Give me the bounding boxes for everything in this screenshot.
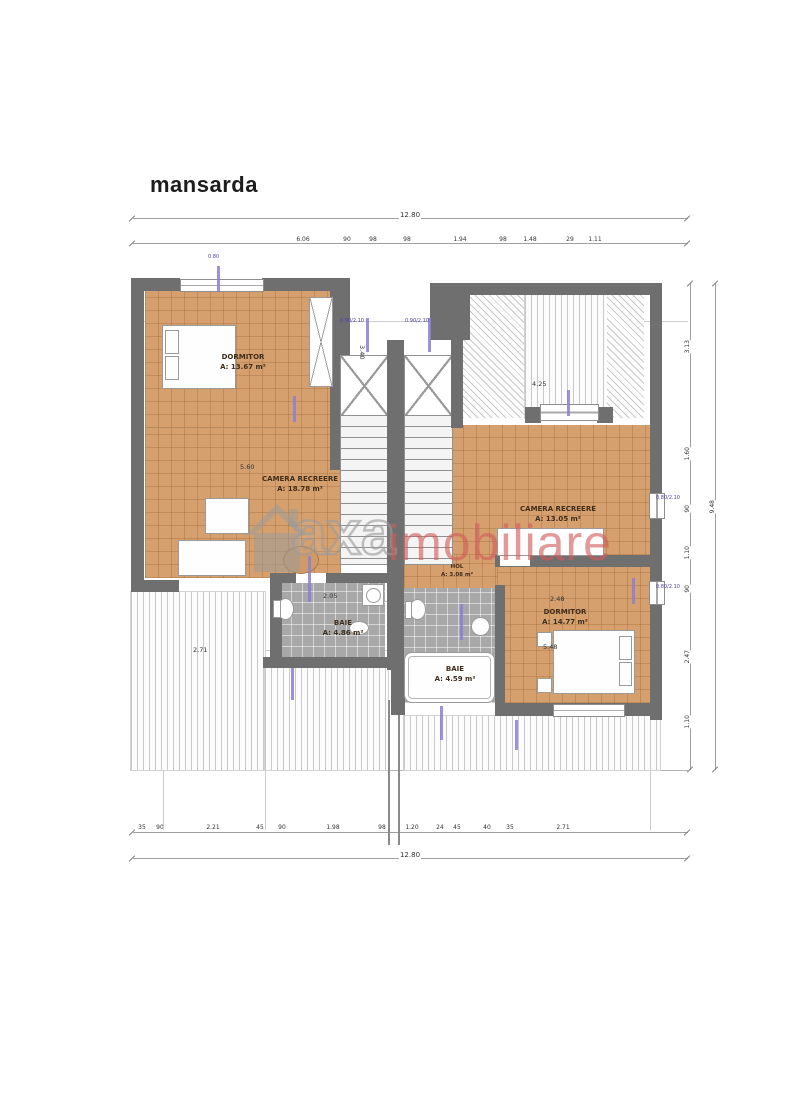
dim-label: 90 — [684, 585, 691, 593]
dim-label: 98 — [368, 236, 378, 243]
extension-line — [163, 770, 164, 830]
dim-label: 90 — [277, 824, 287, 831]
dim-label: 6.06 — [295, 236, 310, 243]
room-label-baie-left: BAIE A: 4.86 m² — [323, 618, 364, 638]
room-area: A: 13.67 m² — [220, 362, 266, 372]
room-name: CAMERA RECREERE — [520, 504, 596, 514]
staircase-left — [340, 415, 389, 565]
dim-label: 90 — [684, 505, 691, 513]
interior-dim: 4.25 — [532, 380, 546, 388]
pillow — [165, 356, 179, 380]
dim-label: 98 — [498, 236, 508, 243]
dim-label: 1.10 — [684, 715, 691, 728]
room-area: A: 18.78 m² — [262, 484, 338, 494]
room-name: DORMITOR — [220, 352, 266, 362]
terrace-roof-left-lower — [265, 668, 388, 770]
door-marker — [308, 556, 311, 602]
dim-line-top-chain — [133, 243, 688, 244]
dimension-tick — [684, 829, 690, 835]
door-marker — [291, 668, 294, 700]
interior-dim: 5.60 — [240, 463, 254, 471]
window-size-label: 0.80 — [208, 254, 219, 260]
dim-line-right-chain — [690, 283, 691, 770]
pillow — [619, 662, 632, 686]
wall-segment — [270, 573, 388, 583]
dim-label: 24 — [435, 824, 445, 831]
wall-segment — [597, 407, 613, 423]
dim-label: 40 — [482, 824, 492, 831]
wall-segment — [391, 670, 405, 715]
dim-label: 2.71 — [555, 824, 570, 831]
window-marker — [567, 390, 570, 416]
dim-label: 3.13 — [684, 340, 691, 353]
door-size-label: 0.90/2.10 — [405, 318, 429, 324]
window-size-label: 0.80/2.10 — [656, 495, 680, 501]
door-size-label: 0.90/2.10 — [340, 318, 364, 324]
chimney-line — [388, 700, 390, 845]
interior-dim: 5.48 — [543, 643, 557, 651]
washing-machine-drum — [366, 588, 381, 603]
door-marker — [293, 396, 296, 422]
sink-right — [471, 617, 490, 636]
stair-landing-left — [340, 355, 389, 417]
interior-dim: 2.05 — [323, 592, 337, 600]
room-name: BAIE — [435, 664, 476, 674]
dim-label: 1.11 — [587, 236, 602, 243]
sofa-living-left — [178, 540, 246, 576]
room-area: A: 4.59 m² — [435, 674, 476, 684]
stair-landing-right — [404, 355, 453, 417]
door-marker — [366, 318, 369, 352]
room-area: A: 3.08 m² — [441, 572, 473, 580]
terrace-roof-left — [131, 592, 265, 770]
wardrobe-left — [309, 297, 333, 387]
chimney-line — [398, 700, 400, 845]
room-area: A: 13.05 m² — [520, 514, 596, 524]
room-label-dormitor-left: DORMITOR A: 13.67 m² — [220, 352, 266, 372]
dim-line-bottom-chain — [133, 832, 688, 833]
toilet-tank-left — [273, 600, 281, 618]
room-area: A: 14.77 m² — [542, 617, 588, 627]
floorplan-page: mansarda 12.80 6.06 90 98 98 1.94 98 1.4… — [0, 0, 800, 1093]
dimension-tick — [712, 766, 718, 772]
interior-dim: 2.48 — [550, 595, 564, 603]
dim-label-bottom-overall: 12.80 — [399, 851, 421, 859]
dim-label: 29 — [565, 236, 575, 243]
round-table — [283, 546, 319, 574]
dim-label: 1.94 — [452, 236, 467, 243]
wall-segment — [451, 340, 463, 428]
dim-label: 90 — [342, 236, 352, 243]
room-label-camera-right: CAMERA RECREERE A: 13.05 m² — [520, 504, 596, 524]
dim-label: 1.98 — [325, 824, 340, 831]
window-marker — [217, 266, 220, 292]
room-name: CAMERA RECREERE — [262, 474, 338, 484]
pillow — [619, 636, 632, 660]
dim-label: 1.10 — [684, 546, 691, 559]
window-top-bedroom-left — [180, 279, 264, 292]
wall-segment-central-spine — [387, 340, 404, 670]
wall-segment — [131, 278, 144, 592]
interior-dim: 3.40 — [358, 345, 366, 359]
room-name: DORMITOR — [542, 607, 588, 617]
dim-label: 2.47 — [684, 650, 691, 663]
table-living-left — [205, 498, 249, 534]
room-label-dormitor-right: DORMITOR A: 14.77 m² — [542, 607, 588, 627]
dimension-tick — [684, 215, 690, 221]
dim-label: 1.20 — [404, 824, 419, 831]
door-gap-bedroom-right — [500, 556, 530, 566]
room-label-baie-right: BAIE A: 4.59 m² — [435, 664, 476, 684]
door-gap-bathroom-left — [296, 573, 326, 583]
room-name: BAIE — [323, 618, 364, 628]
wall-segment — [525, 407, 541, 423]
dim-label-right-overall: 9.48 — [709, 500, 716, 513]
sofa-living-right — [497, 528, 604, 556]
dim-label: 45 — [452, 824, 462, 831]
room-label-hol-right: HOL A: 3.08 m² — [441, 564, 473, 579]
dim-label: 98 — [377, 824, 387, 831]
roof-deck-middle — [525, 285, 607, 418]
dim-label: 1.60 — [684, 447, 691, 460]
wall-segment — [495, 585, 505, 705]
extension-line — [265, 770, 266, 830]
dimension-tick — [684, 240, 690, 246]
dim-label: 2.21 — [205, 824, 220, 831]
dim-label: 45 — [255, 824, 265, 831]
dim-label: 98 — [402, 236, 412, 243]
roof-edge-line — [131, 770, 688, 771]
toilet-tank-right — [405, 601, 412, 619]
wall-segment — [430, 283, 662, 295]
dim-label-top-overall: 12.80 — [399, 211, 421, 219]
pillow — [165, 330, 179, 354]
dimension-tick — [684, 855, 690, 861]
wall-segment — [330, 278, 350, 355]
nightstand — [537, 678, 552, 693]
dim-label: 1.48 — [522, 236, 537, 243]
room-name: HOL — [441, 564, 473, 572]
staircase-right — [404, 415, 453, 565]
dim-label: 35 — [505, 824, 515, 831]
door-marker — [515, 720, 518, 750]
room-label-camera-left: CAMERA RECREERE A: 18.78 m² — [262, 474, 338, 494]
room-divider-line — [145, 427, 341, 428]
dim-line-right-overall — [715, 283, 716, 770]
roof-hatch-right — [607, 295, 644, 418]
window-marker — [632, 578, 635, 604]
door-marker — [440, 706, 443, 740]
door-marker — [460, 604, 463, 640]
room-area: A: 4.86 m² — [323, 628, 364, 638]
window-size-label: 0.80/2.10 — [656, 584, 680, 590]
window-bottom-bedroom-right — [553, 704, 625, 717]
page-title: mansarda — [150, 172, 258, 198]
dim-label: 35 — [137, 824, 147, 831]
wall-segment — [263, 657, 388, 668]
wall-segment — [131, 580, 179, 592]
interior-dim: 2.71 — [193, 646, 207, 654]
